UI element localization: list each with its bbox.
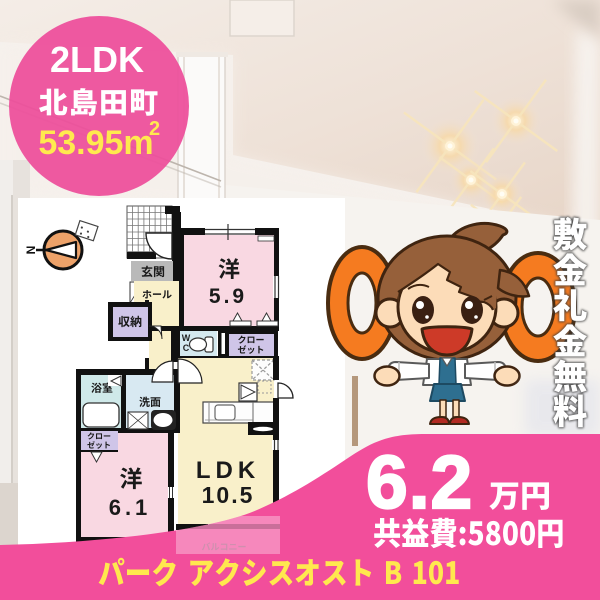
svg-text:6.1: 6.1 xyxy=(109,495,152,520)
svg-text:W: W xyxy=(182,333,191,343)
svg-text:2: 2 xyxy=(149,118,160,140)
svg-text:53.95m: 53.95m xyxy=(38,124,153,162)
svg-text:6.2: 6.2 xyxy=(366,440,473,524)
svg-text:10.5: 10.5 xyxy=(202,482,255,508)
svg-text:N: N xyxy=(24,246,38,255)
svg-text:C: C xyxy=(183,343,190,353)
svg-text:5.9: 5.9 xyxy=(209,285,247,308)
svg-text:LDK: LDK xyxy=(196,457,260,484)
svg-text:2LDK: 2LDK xyxy=(50,39,144,80)
